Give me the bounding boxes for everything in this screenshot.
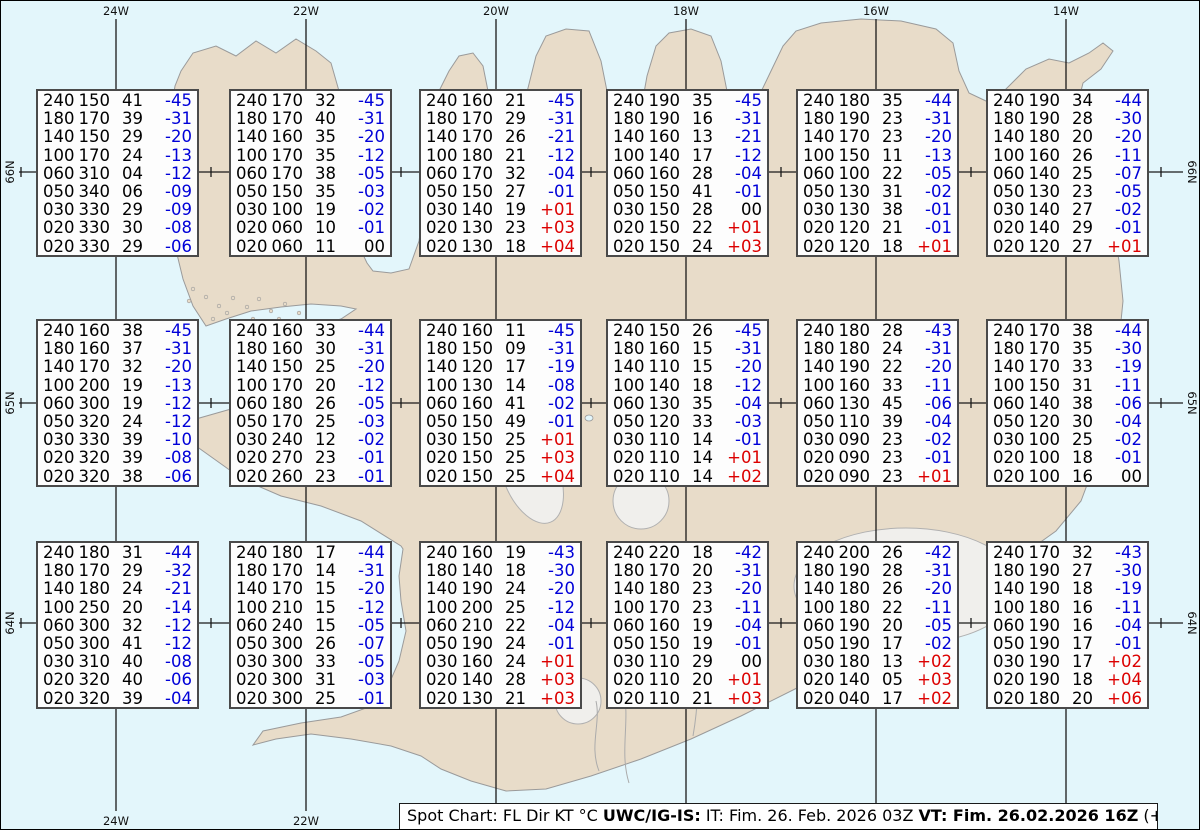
spot-value: -31 (903, 340, 952, 358)
spot-value: 170 (462, 128, 494, 146)
spot-line: 24015026-45 (613, 322, 762, 340)
spot-value: 140 (426, 580, 458, 598)
spot-value: -12 (336, 599, 385, 617)
spot-value: 140 (839, 671, 871, 689)
spot-value: 180 (236, 340, 268, 358)
spot-value: -30 (526, 562, 575, 580)
spot-value: 35 (312, 128, 336, 146)
spot-value: 060 (236, 165, 268, 183)
spot-value: 29 (689, 653, 713, 671)
spot-value: 160 (272, 340, 304, 358)
spot-value: 140 (993, 128, 1025, 146)
spot-value: -10 (143, 431, 192, 449)
spot-value: 110 (649, 358, 681, 376)
spot-box-r3-c6: 24017032-4318019027-3014019018-191001801… (986, 541, 1149, 709)
spot-value: 26 (1069, 147, 1093, 165)
spot-value: +03 (903, 671, 952, 689)
spot-value: 150 (649, 635, 681, 653)
spot-value: 240 (272, 431, 304, 449)
spot-value: 170 (272, 92, 304, 110)
spot-value: -42 (713, 544, 762, 562)
spot-value: 020 (803, 468, 835, 486)
spot-value: 35 (1069, 340, 1093, 358)
spot-value: 180 (613, 340, 645, 358)
spot-value: -05 (336, 617, 385, 635)
spot-value: 28 (689, 165, 713, 183)
spot-value: 190 (839, 358, 871, 376)
spot-line: 02015024+03 (613, 238, 762, 256)
spot-value: 13 (879, 653, 903, 671)
spot-value: -01 (1093, 449, 1142, 467)
spot-value: 100 (613, 147, 645, 165)
spot-line: 02010018-01 (993, 449, 1142, 467)
spot-value: 39 (119, 110, 143, 128)
spot-value: 29 (119, 562, 143, 580)
spot-value: 160 (462, 322, 494, 340)
spot-line: 10021015-12 (236, 599, 385, 617)
spot-value: 20 (689, 671, 713, 689)
spot-value: -11 (1093, 147, 1142, 165)
spot-value: -42 (903, 544, 952, 562)
spot-value: 020 (43, 690, 75, 708)
spot-line: 03013038-01 (803, 201, 952, 219)
spot-value: 180 (993, 340, 1025, 358)
spot-value: 13 (689, 128, 713, 146)
spot-value: 060 (272, 219, 304, 237)
spot-value: 31 (1069, 377, 1093, 395)
spot-value: 240 (803, 544, 835, 562)
spot-value: 22 (879, 358, 903, 376)
spot-value: 00 (1093, 468, 1142, 486)
spot-value: 180 (426, 340, 458, 358)
spot-value: 39 (119, 449, 143, 467)
spot-value: 240 (43, 544, 75, 562)
spot-value: -01 (336, 219, 385, 237)
spot-value: -31 (336, 340, 385, 358)
spot-value: 100 (426, 147, 458, 165)
spot-value: 30 (119, 219, 143, 237)
spot-value: 160 (462, 653, 494, 671)
spot-value: 14 (689, 468, 713, 486)
spot-line: 06016028-04 (613, 165, 762, 183)
spot-line: 10018022-11 (803, 599, 952, 617)
spot-value: 120 (462, 358, 494, 376)
spot-value: 050 (426, 413, 458, 431)
spot-value: -30 (1093, 562, 1142, 580)
spot-value: 16 (1069, 599, 1093, 617)
spot-value: -20 (903, 128, 952, 146)
spot-value: 240 (43, 92, 75, 110)
spot-line: 05013031-02 (803, 183, 952, 201)
spot-line: 24018035-44 (803, 92, 952, 110)
spot-line: 0201001600 (993, 468, 1142, 486)
spot-line: 10014017-12 (613, 147, 762, 165)
spot-value: 25 (312, 358, 336, 376)
spot-value: 050 (236, 413, 268, 431)
spot-value: 180 (1029, 690, 1061, 708)
spot-value: 190 (1029, 92, 1061, 110)
spot-value: -44 (1093, 322, 1142, 340)
spot-value: 170 (79, 358, 111, 376)
spot-value: -14 (143, 599, 192, 617)
spot-value: 140 (1029, 201, 1061, 219)
spot-value: 23 (879, 468, 903, 486)
spot-line: 24016033-44 (236, 322, 385, 340)
spot-value: 24 (502, 653, 526, 671)
spot-value: 150 (1029, 377, 1061, 395)
latitude-label-right: 66N (1186, 160, 1198, 183)
spot-line: 14017023-20 (803, 128, 952, 146)
spot-value: 20 (119, 599, 143, 617)
spot-value: 29 (502, 110, 526, 128)
spot-value: -08 (143, 219, 192, 237)
spot-value: 33 (1069, 358, 1093, 376)
spot-line: 10014018-12 (613, 377, 762, 395)
spot-value: -05 (336, 395, 385, 413)
spot-value: 150 (79, 128, 111, 146)
spot-value: 23 (879, 431, 903, 449)
spot-line: 03016024+01 (426, 653, 575, 671)
spot-line: 02015025+03 (426, 449, 575, 467)
spot-line: 03010019-02 (236, 201, 385, 219)
spot-value: 030 (803, 431, 835, 449)
chart-caption: Spot Chart: FL Dir KT °C UWC/IG-IS: IT: … (399, 803, 1158, 830)
spot-value: +01 (713, 671, 762, 689)
spot-line: 10017020-12 (236, 377, 385, 395)
caption-bold-text: VT: Fim. 26.02.2026 16Z (919, 806, 1139, 825)
spot-value: 320 (79, 690, 111, 708)
spot-value: -02 (1093, 431, 1142, 449)
spot-value: 060 (236, 617, 268, 635)
spot-value: 30 (312, 340, 336, 358)
spot-value: -03 (336, 183, 385, 201)
spot-value: 250 (79, 599, 111, 617)
spot-value: -05 (336, 165, 385, 183)
spot-value: +01 (526, 431, 575, 449)
spot-value: 14 (502, 377, 526, 395)
spot-line: 0301102900 (613, 653, 762, 671)
spot-value: -01 (713, 183, 762, 201)
spot-line: 14017015-20 (236, 580, 385, 598)
spot-value: 050 (236, 635, 268, 653)
spot-value: 020 (613, 449, 645, 467)
spot-value: -01 (526, 183, 575, 201)
spot-value: 110 (649, 671, 681, 689)
spot-value: 140 (1029, 219, 1061, 237)
spot-line: 18016015-31 (613, 340, 762, 358)
spot-line: 24020026-42 (803, 544, 952, 562)
spot-value: 100 (426, 599, 458, 617)
spot-value: 020 (43, 671, 75, 689)
spot-value: -04 (713, 165, 762, 183)
spot-value: 060 (426, 617, 458, 635)
spot-value: 150 (649, 238, 681, 256)
spot-value: 20 (312, 377, 336, 395)
spot-line: 06021022-04 (426, 617, 575, 635)
spot-value: -19 (1093, 358, 1142, 376)
spot-value: 25 (502, 431, 526, 449)
spot-value: -04 (526, 165, 575, 183)
spot-value: 140 (236, 128, 268, 146)
spot-line: 18015009-31 (426, 340, 575, 358)
spot-line: 03011014-01 (613, 431, 762, 449)
spot-line: 24022018-42 (613, 544, 762, 562)
longitude-label-top: 24W (103, 5, 129, 17)
spot-value: -20 (143, 358, 192, 376)
spot-value: 180 (1029, 599, 1061, 617)
spot-value: -03 (713, 413, 762, 431)
spot-value: -20 (336, 358, 385, 376)
spot-value: 14 (312, 562, 336, 580)
spot-value: -11 (1093, 377, 1142, 395)
spot-value: 030 (236, 653, 268, 671)
spot-value: 140 (649, 147, 681, 165)
spot-value: 050 (43, 413, 75, 431)
spot-value: -12 (713, 147, 762, 165)
spot-value: 24 (879, 340, 903, 358)
spot-line: 02026023-01 (236, 468, 385, 486)
spot-value: +06 (1093, 690, 1142, 708)
spot-value: 100 (1029, 431, 1061, 449)
spot-value: 240 (426, 544, 458, 562)
spot-value: -02 (526, 395, 575, 413)
longitude-label-top: 16W (863, 5, 889, 17)
spot-value: 180 (839, 599, 871, 617)
spot-value: 17 (689, 147, 713, 165)
spot-value: 38 (119, 322, 143, 340)
spot-value: 300 (272, 635, 304, 653)
spot-value: 060 (43, 617, 75, 635)
spot-value: 28 (689, 201, 713, 219)
spot-value: 240 (236, 544, 268, 562)
spot-value: 29 (119, 201, 143, 219)
spot-value: 170 (272, 377, 304, 395)
spot-value: 090 (839, 449, 871, 467)
spot-value: 060 (43, 395, 75, 413)
spot-value: 300 (79, 395, 111, 413)
spot-value: 020 (613, 238, 645, 256)
spot-value: 060 (993, 617, 1025, 635)
spot-value: -45 (143, 92, 192, 110)
spot-value: 020 (613, 671, 645, 689)
spot-line: 02032040-06 (43, 671, 192, 689)
spot-line: 10018021-12 (426, 147, 575, 165)
spot-value: 17 (312, 544, 336, 562)
spot-value: 240 (993, 322, 1025, 340)
spot-line: 18017029-32 (43, 562, 192, 580)
spot-value: 220 (649, 544, 681, 562)
spot-line: 24019035-45 (613, 92, 762, 110)
spot-line: 14018020-20 (993, 128, 1142, 146)
spot-value: -12 (143, 413, 192, 431)
spot-value: -06 (143, 671, 192, 689)
spot-value: 240 (613, 322, 645, 340)
spot-value: -07 (336, 635, 385, 653)
spot-value: 190 (462, 635, 494, 653)
spot-value: 160 (462, 395, 494, 413)
longitude-label-top: 22W (293, 5, 319, 17)
spot-line: 02032038-06 (43, 468, 192, 486)
spot-value: -03 (336, 671, 385, 689)
spot-value: 140 (1029, 165, 1061, 183)
spot-value: 110 (649, 690, 681, 708)
spot-line: 14017032-20 (43, 358, 192, 376)
spot-value: 11 (312, 238, 336, 256)
spot-value: 31 (879, 183, 903, 201)
spot-value: 170 (272, 413, 304, 431)
spot-value: -02 (336, 431, 385, 449)
spot-value: 35 (689, 92, 713, 110)
spot-value: 240 (803, 92, 835, 110)
spot-line: 18016030-31 (236, 340, 385, 358)
spot-value: 020 (236, 468, 268, 486)
spot-value: 240 (236, 322, 268, 340)
spot-value: 100 (236, 599, 268, 617)
spot-value: 06 (119, 183, 143, 201)
spot-value: 100 (272, 201, 304, 219)
spot-value: 160 (649, 340, 681, 358)
longitude-label-bottom: 22W (293, 815, 319, 827)
spot-value: 310 (79, 653, 111, 671)
spot-value: -01 (336, 468, 385, 486)
spot-value: 29 (1069, 219, 1093, 237)
spot-value: 180 (839, 92, 871, 110)
spot-value: -19 (1093, 580, 1142, 598)
spot-value: 090 (839, 431, 871, 449)
spot-value: +04 (1093, 671, 1142, 689)
spot-line: 02006010-01 (236, 219, 385, 237)
spot-value: 190 (1029, 110, 1061, 128)
spot-line: 02012018+01 (803, 238, 952, 256)
spot-line: 18019016-31 (613, 110, 762, 128)
spot-line: 06014025-07 (993, 165, 1142, 183)
spot-value: 060 (803, 165, 835, 183)
spot-value: -05 (903, 165, 952, 183)
spot-line: 24017032-45 (236, 92, 385, 110)
spot-box-r1-c1: 24015041-4518017039-3114015029-201001702… (36, 89, 199, 257)
spot-value: 130 (462, 219, 494, 237)
spot-value: -32 (143, 562, 192, 580)
spot-value: 150 (462, 449, 494, 467)
spot-value: +02 (1093, 653, 1142, 671)
spot-value: 050 (236, 183, 268, 201)
spot-line: 24015041-45 (43, 92, 192, 110)
spot-value: 050 (43, 183, 75, 201)
spot-value: 050 (803, 413, 835, 431)
spot-value: 050 (803, 183, 835, 201)
spot-line: 0200601100 (236, 238, 385, 256)
spot-value: 23 (689, 580, 713, 598)
spot-value: 130 (649, 395, 681, 413)
spot-value: 170 (79, 110, 111, 128)
spot-value: 060 (613, 165, 645, 183)
spot-value: -31 (713, 110, 762, 128)
spot-line: 05011039-04 (803, 413, 952, 431)
spot-line: 05015027-01 (426, 183, 575, 201)
spot-value: 020 (43, 468, 75, 486)
spot-value: -04 (1093, 617, 1142, 635)
spot-value: 300 (272, 653, 304, 671)
spot-box-r1-c5: 24018035-4418019023-3114017023-201001501… (796, 89, 959, 257)
spot-value: 030 (613, 653, 645, 671)
spot-value: 15 (312, 580, 336, 598)
spot-value: 190 (1029, 580, 1061, 598)
spot-line: 06014038-06 (993, 395, 1142, 413)
spot-value: 19 (312, 201, 336, 219)
spot-value: 27 (1069, 201, 1093, 219)
spot-value: 17 (1069, 653, 1093, 671)
spot-value: -31 (143, 110, 192, 128)
spot-value: -45 (713, 92, 762, 110)
spot-value: 49 (502, 413, 526, 431)
spot-value: 140 (993, 358, 1025, 376)
spot-value: 180 (649, 580, 681, 598)
spot-value: 190 (1029, 671, 1061, 689)
spot-value: 170 (1029, 340, 1061, 358)
spot-value: 150 (272, 358, 304, 376)
spot-value: 170 (272, 110, 304, 128)
spot-line: 02012027+01 (993, 238, 1142, 256)
spot-value: -01 (713, 431, 762, 449)
spot-value: -31 (336, 110, 385, 128)
spot-value: 030 (613, 201, 645, 219)
spot-line: 10018016-11 (993, 599, 1142, 617)
spot-value: 14 (689, 431, 713, 449)
spot-value: 210 (462, 617, 494, 635)
spot-value: 020 (993, 690, 1025, 708)
spot-value: 030 (426, 201, 458, 219)
spot-value: -30 (1093, 340, 1142, 358)
spot-value: -06 (903, 395, 952, 413)
spot-line: 18016037-31 (43, 340, 192, 358)
spot-value: -13 (143, 147, 192, 165)
spot-value: 050 (43, 635, 75, 653)
spot-value: -21 (526, 128, 575, 146)
spot-line: 05015049-01 (426, 413, 575, 431)
spot-line: 05032024-12 (43, 413, 192, 431)
spot-value: +04 (526, 468, 575, 486)
spot-value: +02 (903, 653, 952, 671)
spot-value: 240 (613, 544, 645, 562)
spot-value: 240 (236, 92, 268, 110)
spot-box-r3-c5: 24020026-4218019028-3114018026-201001802… (796, 541, 959, 709)
spot-box-r2-c6: 24017038-4418017035-3014017033-191001503… (986, 319, 1149, 487)
spot-value: 38 (1069, 322, 1093, 340)
spot-value: 100 (1029, 468, 1061, 486)
spot-line: 14018026-20 (803, 580, 952, 598)
spot-value: -31 (143, 340, 192, 358)
spot-line: 24016011-45 (426, 322, 575, 340)
spot-value: 110 (649, 468, 681, 486)
spot-value: 150 (649, 322, 681, 340)
spot-value: 32 (119, 617, 143, 635)
spot-value: 140 (43, 580, 75, 598)
spot-box-r1-c2: 24017032-4518017040-3114016035-201001703… (229, 89, 392, 257)
spot-value: -43 (903, 322, 952, 340)
spot-value: 190 (1029, 653, 1061, 671)
spot-line: 05019024-01 (426, 635, 575, 653)
spot-value: -02 (903, 183, 952, 201)
spot-value: 190 (839, 635, 871, 653)
spot-value: 050 (613, 183, 645, 201)
spot-line: 02012021-01 (803, 219, 952, 237)
spot-value: -08 (526, 377, 575, 395)
spot-value: 190 (462, 580, 494, 598)
spot-line: 0301502800 (613, 201, 762, 219)
spot-value: -43 (526, 544, 575, 562)
spot-value: -31 (903, 110, 952, 128)
spot-value: -31 (903, 562, 952, 580)
